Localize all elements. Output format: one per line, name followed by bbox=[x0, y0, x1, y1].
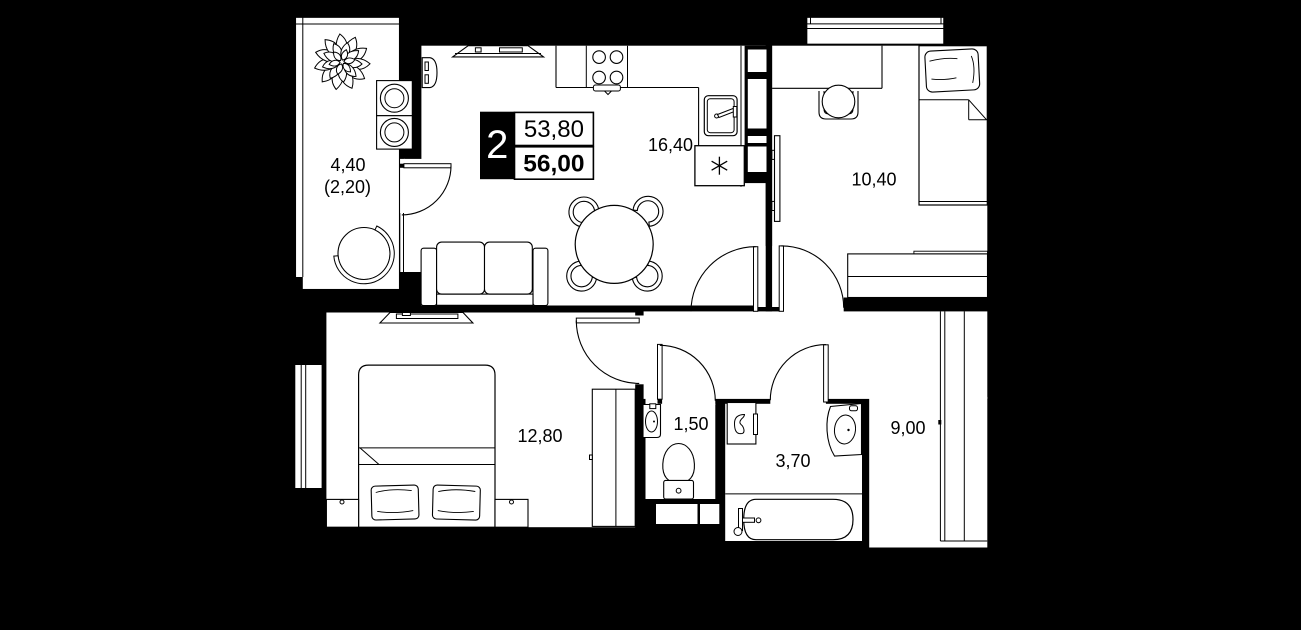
svg-text:4,40: 4,40 bbox=[330, 155, 365, 175]
svg-text:56,00: 56,00 bbox=[523, 151, 584, 178]
svg-text:3,70: 3,70 bbox=[775, 451, 810, 471]
svg-text:16,40: 16,40 bbox=[648, 135, 693, 155]
svg-text:1,50: 1,50 bbox=[673, 414, 708, 434]
svg-text:12,80: 12,80 bbox=[517, 426, 562, 446]
svg-text:(2,20): (2,20) bbox=[324, 177, 371, 197]
svg-text:2: 2 bbox=[486, 123, 508, 167]
svg-text:9,00: 9,00 bbox=[890, 418, 925, 438]
svg-text:53,80: 53,80 bbox=[524, 116, 584, 143]
svg-text:10,40: 10,40 bbox=[851, 170, 896, 190]
